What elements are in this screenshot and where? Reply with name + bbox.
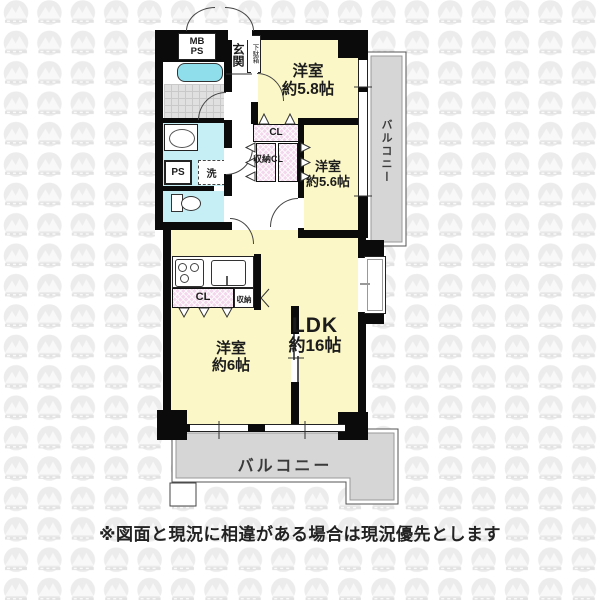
balcony-bottom-label: バルコニー [200,452,370,476]
bedroom-5-8-label: 洋室 約5.8帖 [258,63,358,99]
disclaimer-text: ※図面と現況に相違がある場合は現況優先とします [0,520,600,545]
closet-lower-label: CL [172,291,234,303]
floorplan-page: { "plan": { "meter_box": {"line1": "MB",… [0,0,600,600]
bedroom-5-8-size: 約5.8帖 [258,81,358,99]
storage-lower-label: 収納 [234,294,254,305]
ldk-name: LDK [260,314,370,337]
ldk-size: 約16帖 [260,337,370,356]
bedroom-6-size: 約6帖 [171,357,291,374]
bedroom-5-6-name: 洋室 [292,160,364,175]
closet-upper-label: CL [253,127,299,138]
bedroom-5-6-label: 洋室 約5.6帖 [292,160,364,190]
storage-cl-label: 収納CL [240,152,296,165]
ldk-label: LDK 約16帖 [260,314,370,356]
bedroom-5-6-size: 約5.6帖 [292,175,364,190]
balcony-right-label: バルコニー [378,108,394,194]
entrance-label: 玄関 [230,37,247,73]
bedroom-5-8-name: 洋室 [258,63,358,81]
